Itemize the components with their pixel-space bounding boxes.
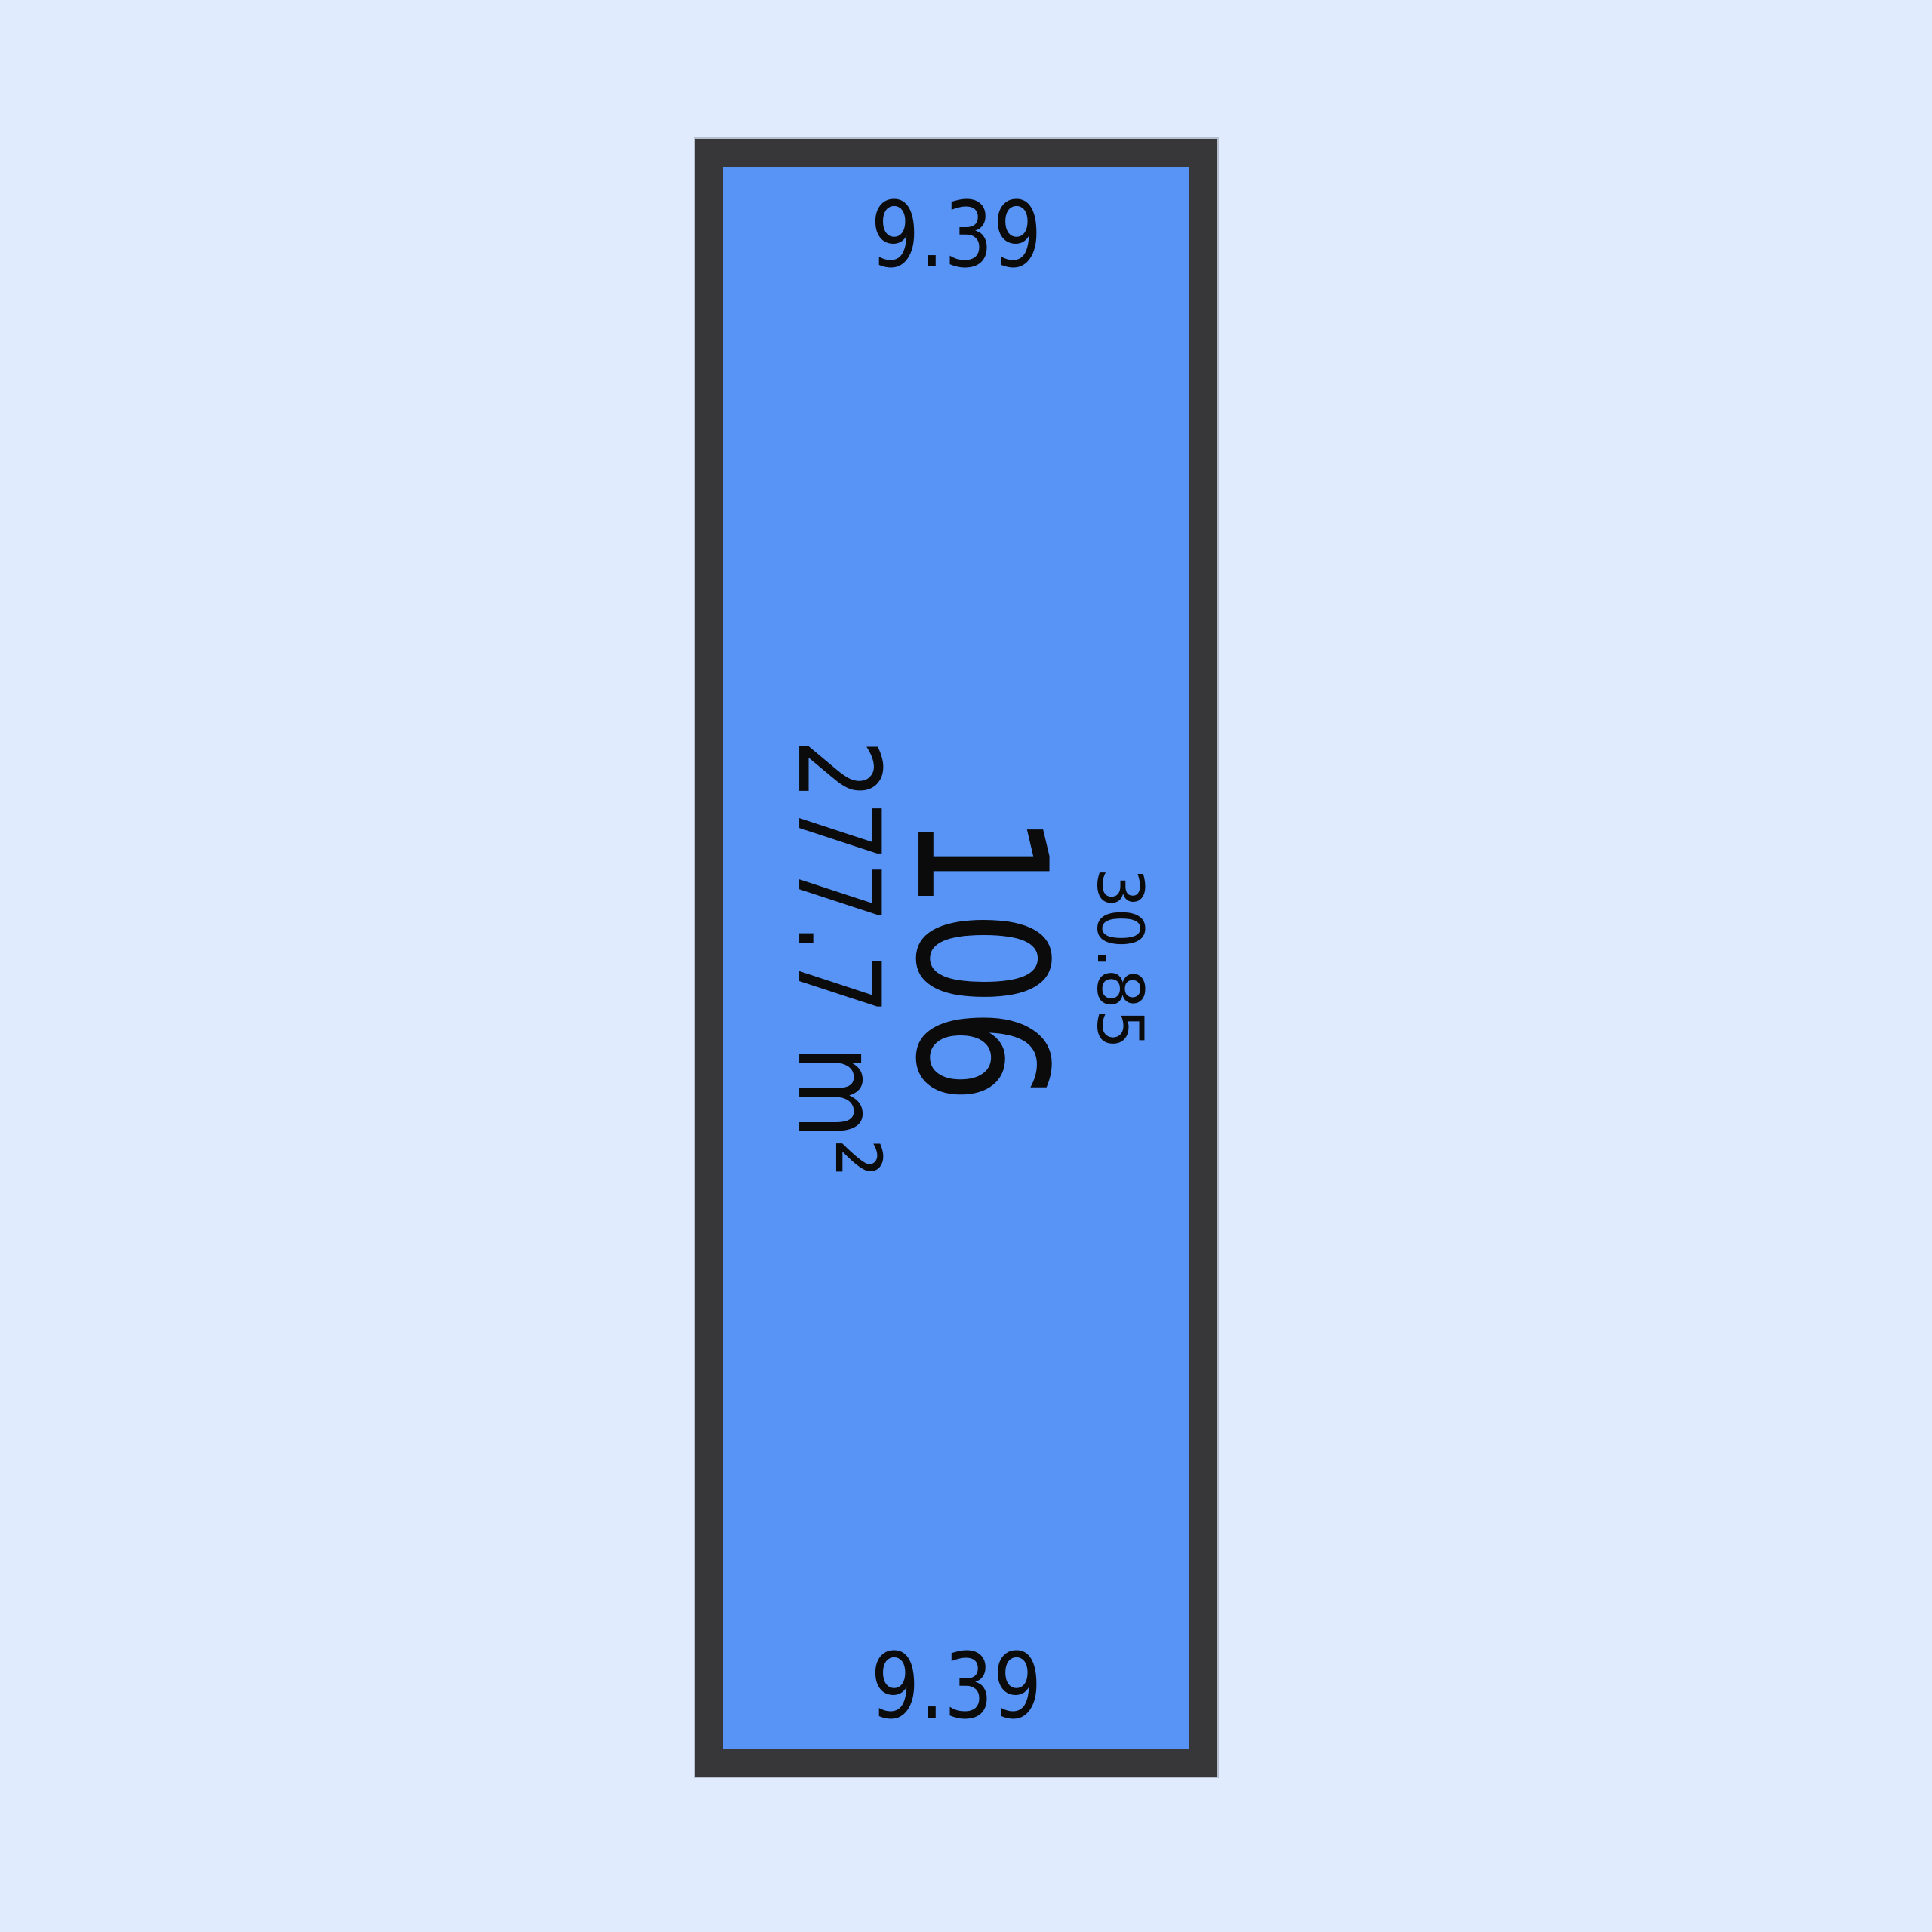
lot-map-canvas: 9.39 30.85 106 277.7 m² 9.39: [0, 0, 1932, 1932]
lot-polygon-106[interactable]: [695, 139, 1217, 1777]
